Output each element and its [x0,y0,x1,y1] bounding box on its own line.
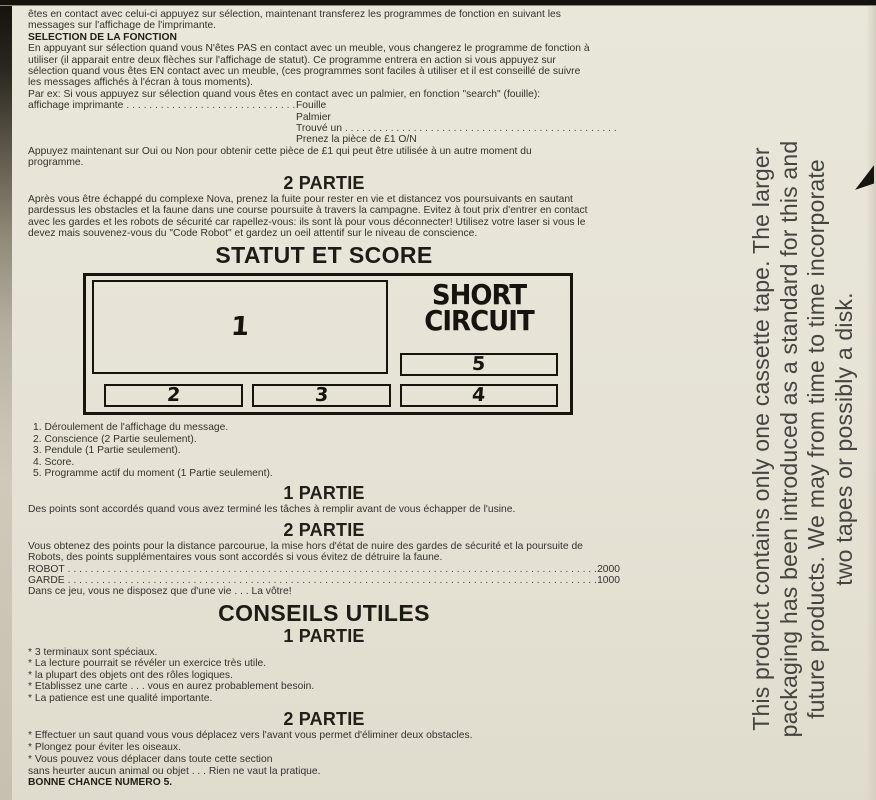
tip-item: * La lecture pourrait se révéler un exer… [28,658,620,670]
good-luck-closing: BONNE CHANCE NUMERO 5. [28,777,620,788]
diagram-number-3: 3 [314,386,329,405]
part2-paragraph: Après vous être échappé du complexe Nova… [28,194,620,240]
legend-item: 1. Déroulement de l'affichage du message… [33,422,620,433]
score-row: GARDE . . . . . . . . . . . . . . . . . … [28,575,620,586]
part2-score-paragraph: Vous obtenez des points pour la distance… [28,541,620,564]
text-line: programme. [28,157,620,168]
text-line: pardessus les obstacles et la faune dans… [28,205,620,216]
tip-item: * La patience est une qualité importante… [28,693,620,705]
diagram-number-1: 1 [230,318,249,337]
printer-label: affichage imprimante [28,100,123,111]
selection-heading: SELECTION DE LA FONCTION [28,32,620,43]
text-line: devez mais souvenez-vous du "Code Robot"… [28,228,620,239]
conseils-part1-heading: 1 PARTIE [28,627,620,645]
scan-left-edge [0,0,12,800]
margin-note-line: packaging has been introduced as a stand… [776,80,804,798]
part2-score-heading: 2 PARTIE [28,521,620,539]
text-line: les messages affichés à l'écran à tous m… [28,77,620,88]
score-table: ROBOT . . . . . . . . . . . . . . . . . … [28,564,620,587]
leader-dots: . . . . . . . . . . . . . . . . . . . . … [345,123,620,134]
legend-item: 3. Pendule (1 Partie seulement). [33,445,620,456]
printer-output-column: Fouille Palmier Trouvé un . . . . . . . … [296,100,620,146]
score-value: 2000 [597,564,620,575]
leader-dots: . . . . . . . . . . . . . . . . . . . . … [68,564,597,575]
part2-heading: 2 PARTIE [28,174,620,192]
tips-continuation: sans heurter aucun animal ou objet . . .… [28,766,620,777]
text-line: sélection quand vous êtes EN contact ave… [28,66,620,77]
tip-item: * 3 terminaux sont spéciaux. [28,647,620,659]
text-line: Après vous être échappé du complexe Nova… [28,194,620,205]
legend-item: 5. Programme actif du moment (1 Partie s… [33,468,620,479]
vertical-margin-note: This product contains only one cassette … [748,80,860,798]
part2-tips-list: * Effectuer un saut quand vous vous dépl… [28,730,620,765]
text-line: sans heurter aucun animal ou objet . . .… [28,766,620,777]
logo-line-circuit: CIRCUIT [400,309,558,335]
diagram-program-box: 5 [400,353,558,376]
text-line: Robots, des points supplémentaires vous … [28,552,620,563]
score-row: ROBOT . . . . . . . . . . . . . . . . . … [28,564,620,575]
tip-item: * Etablissez une carte . . . vous en aur… [28,681,620,693]
status-screen-diagram: 1 SHORT CIRCUIT 5 2 3 4 [83,273,573,415]
selection-closing-paragraph: Appuyez maintenant sur Oui ou Non pour o… [28,146,620,169]
diagram-conscience-box: 2 [104,384,243,407]
part1-score-heading: 1 PARTIE [28,484,620,502]
legend-item: 2. Conscience (2 Partie seulement). [33,434,620,445]
printer-output-label: Trouvé un [296,123,342,134]
tip-item: * Plongez pour éviter les oiseaux. [28,742,620,754]
scan-right-edge [866,0,876,800]
intro-paragraph: êtes en contact avec celui-ci appuyez su… [28,9,620,32]
printer-output-line: Prenez la pièce de £1 O/N [296,134,620,145]
part1-tips-list: * 3 terminaux sont spéciaux.* La lecture… [28,647,620,705]
tip-item: * la plupart des objets ont des rôles lo… [28,670,620,682]
diagram-number-5: 5 [472,355,487,374]
diagram-pendule-box: 3 [252,384,391,407]
diagram-score-box: 4 [400,384,558,407]
score-value: 1000 [597,575,620,586]
leader-dots: . . . . . . . . . . . . . . . . . . . . … [68,575,597,586]
conseils-part2-heading: 2 PARTIE [28,710,620,728]
diagram-message-area: 1 [92,280,388,374]
score-label: GARDE [28,575,65,586]
text-line: messages sur l'affichage de l'imprimante… [28,20,620,31]
manual-text-column: êtes en contact avec celui-ci appuyez su… [28,9,620,788]
diagram-legend: 1. Déroulement de l'affichage du message… [33,422,620,479]
scan-top-edge [0,0,876,6]
leader-dots: . . . . . . . . . . . . . . . . . . . . … [126,100,296,111]
text-line: En appuyant sur sélection quand vous N'ê… [28,43,620,54]
diagram-number-2: 2 [166,386,181,405]
tip-item: * Effectuer un saut quand vous vous dépl… [28,730,620,742]
part1-score-text: Des points sont accordés quand vous avez… [28,504,620,515]
printer-label-line: affichage imprimante . . . . . . . . . .… [28,100,296,111]
legend-item: 4. Score. [33,457,620,468]
text-line: êtes en contact avec celui-ci appuyez su… [28,9,620,20]
conseils-heading: CONSEILS UTILES [28,602,620,625]
margin-note-line: This product contains only one cassette … [748,80,776,798]
margin-note-line: future products. We may from time to tim… [803,80,831,798]
text-line: Vous obtenez des points pour la distance… [28,541,620,552]
tip-item: * Vous pouvez vous déplacer dans toute c… [28,754,620,766]
one-life-note: Dans ce jeu, vous ne disposez que d'une … [28,586,620,597]
printer-output-block: affichage imprimante . . . . . . . . . .… [28,100,620,146]
text-line: Appuyez maintenant sur Oui ou Non pour o… [28,146,620,157]
printer-label-column: affichage imprimante . . . . . . . . . .… [28,100,296,146]
status-score-heading: STATUT ET SCORE [28,244,620,267]
short-circuit-logo: SHORT CIRCUIT [400,283,558,336]
scanned-manual-page: êtes en contact avec celui-ci appuyez su… [0,0,876,800]
example-line: Par ex: Si vous appuyez sur sélection qu… [28,89,620,100]
score-label: ROBOT [28,564,65,575]
printer-output-line: Palmier [296,112,620,123]
text-line: utiliser (il apparait entre deux flèches… [28,55,620,66]
margin-note-line: two tapes or possibly a disk. [831,80,859,798]
printer-output-line: Trouvé un . . . . . . . . . . . . . . . … [296,123,620,134]
selection-paragraph: En appuyant sur sélection quand vous N'ê… [28,43,620,89]
diagram-number-4: 4 [472,386,487,405]
printer-output-line: Fouille [296,100,620,111]
text-line: avec les gardes et les robots de sécurit… [28,217,620,228]
